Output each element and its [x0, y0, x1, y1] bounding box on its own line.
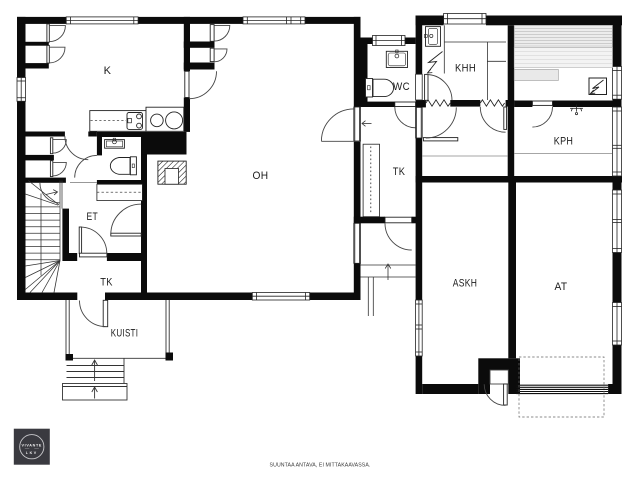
svg-text:TK: TK — [100, 277, 113, 289]
svg-text:WC: WC — [393, 81, 410, 93]
svg-text:K: K — [104, 65, 112, 77]
svg-text:VIVANTE: VIVANTE — [21, 443, 42, 447]
svg-text:AT: AT — [555, 281, 568, 293]
svg-text:OH: OH — [253, 170, 269, 182]
svg-text:KHH: KHH — [455, 63, 476, 75]
svg-text:SUUNTAA ANTAVA, EI MITTAKAAVAS: SUUNTAA ANTAVA, EI MITTAKAAVASSA. — [270, 463, 371, 469]
svg-text:KPH: KPH — [554, 136, 574, 148]
svg-text:LKV: LKV — [26, 451, 38, 455]
svg-text:TK: TK — [393, 166, 406, 178]
svg-text:KUISTI: KUISTI — [111, 328, 139, 340]
svg-text:ASKH: ASKH — [453, 278, 478, 290]
svg-text:ET: ET — [87, 211, 99, 223]
